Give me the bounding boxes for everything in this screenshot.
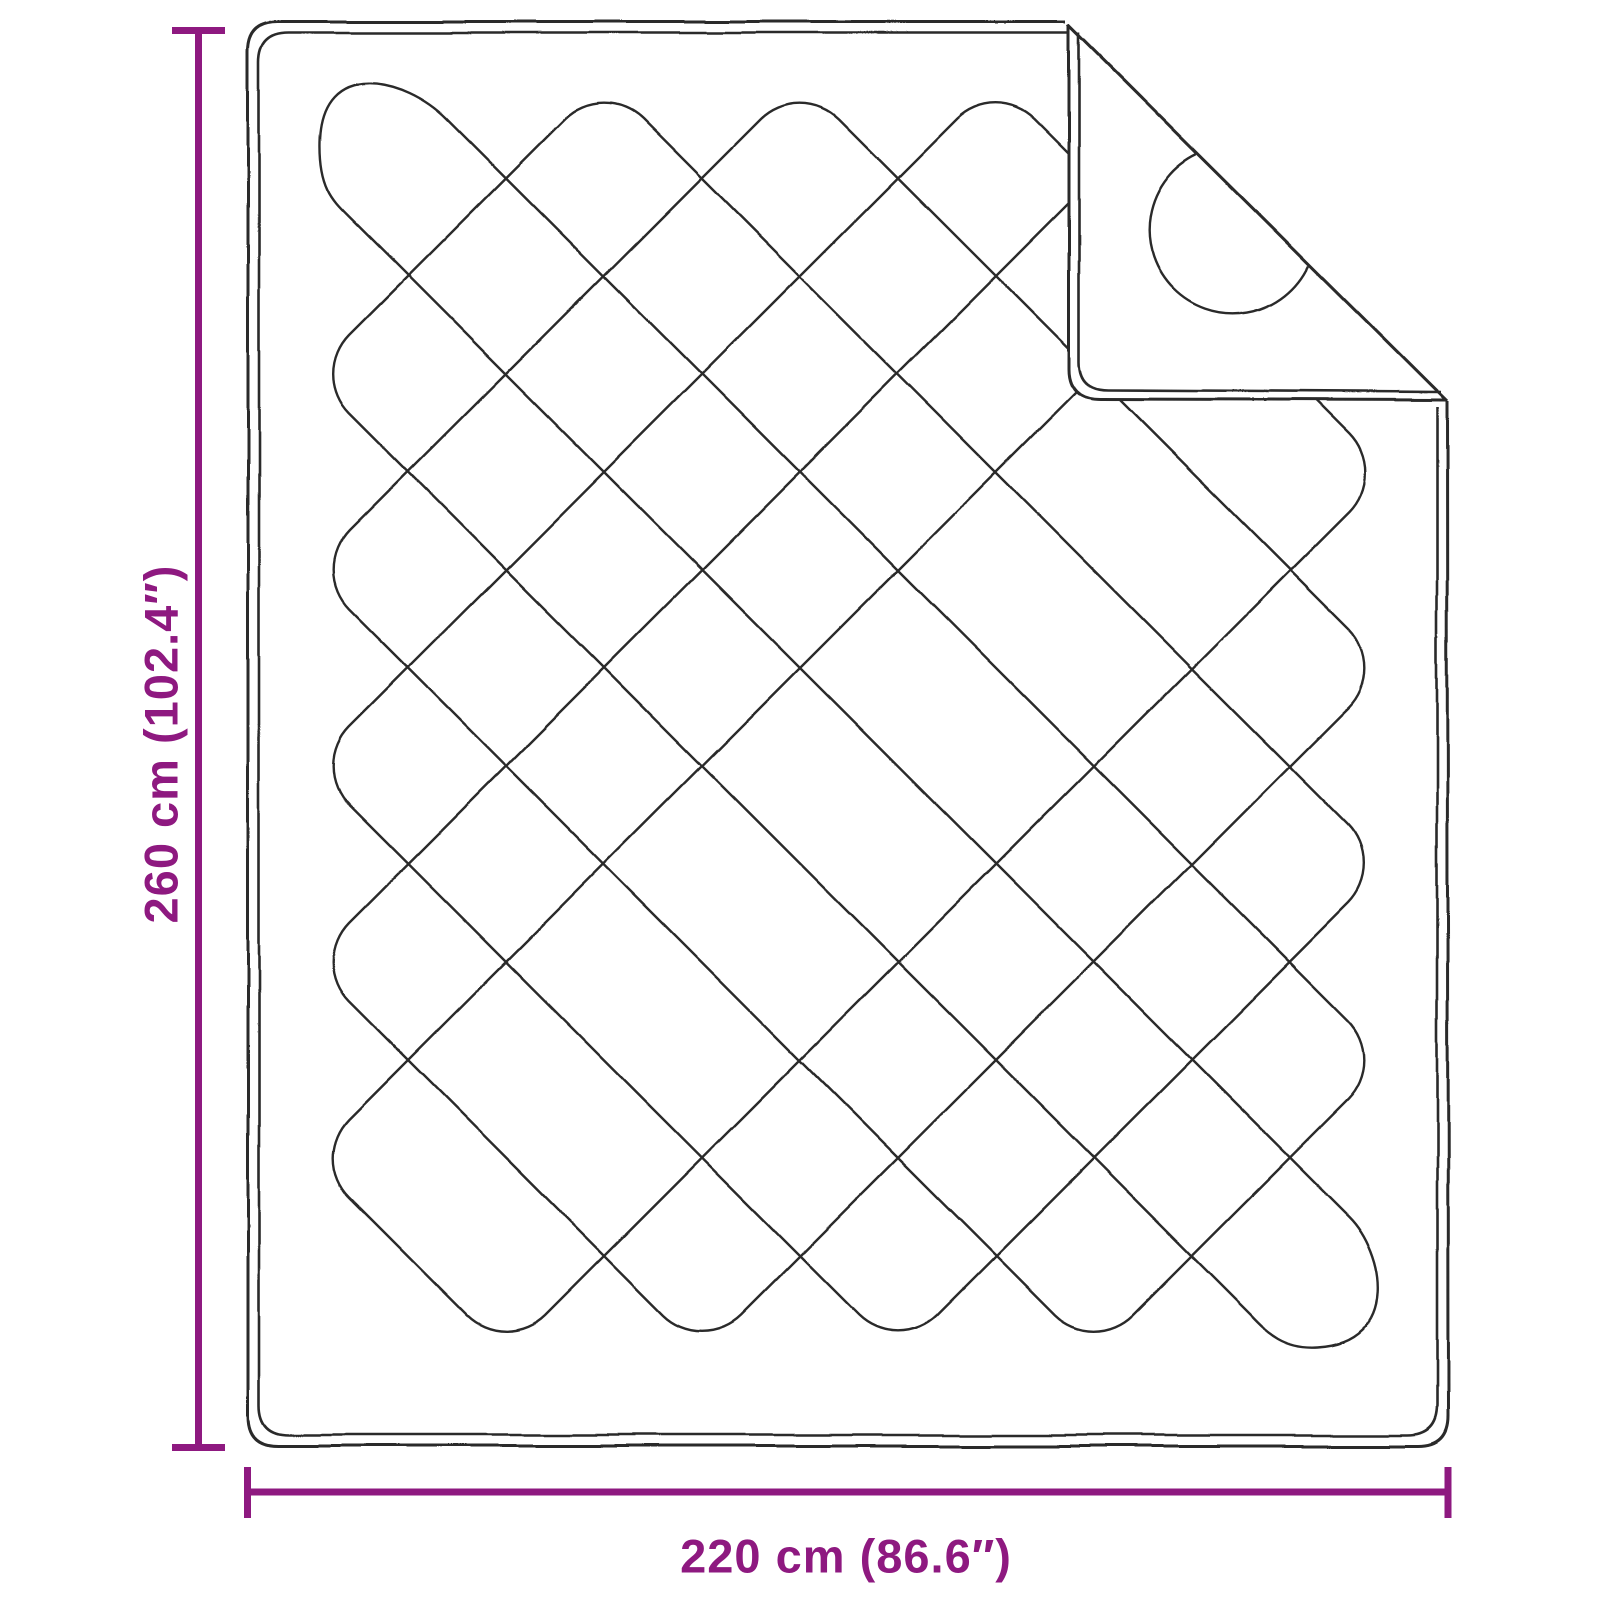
- width-dimension-line: [247, 1467, 1448, 1518]
- product-dimension-diagram: 260 cm (102.4″) 220 cm (86.6″): [0, 0, 1600, 1600]
- dimension-annotations: [0, 0, 1600, 1600]
- height-dimension-label: 260 cm (102.4″): [134, 565, 189, 924]
- width-dimension-label: 220 cm (86.6″): [680, 1529, 1012, 1584]
